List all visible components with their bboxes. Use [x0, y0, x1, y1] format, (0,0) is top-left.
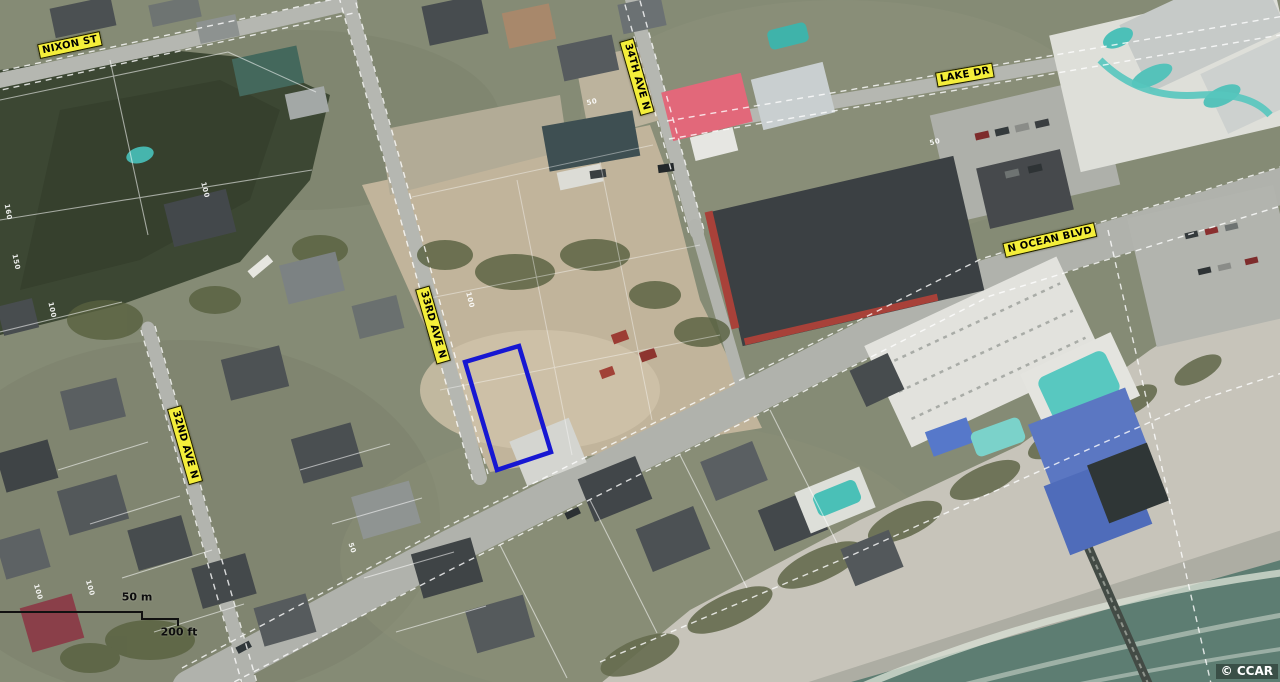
- copyright-watermark: © CCAR: [1216, 664, 1278, 679]
- scale-imperial-label: 200 ft: [161, 626, 198, 639]
- aerial-map: NIXON ST 34TH AVE N LAKE DR N OCEAN BLVD…: [0, 0, 1280, 682]
- scale-metric-label: 50 m: [122, 591, 153, 604]
